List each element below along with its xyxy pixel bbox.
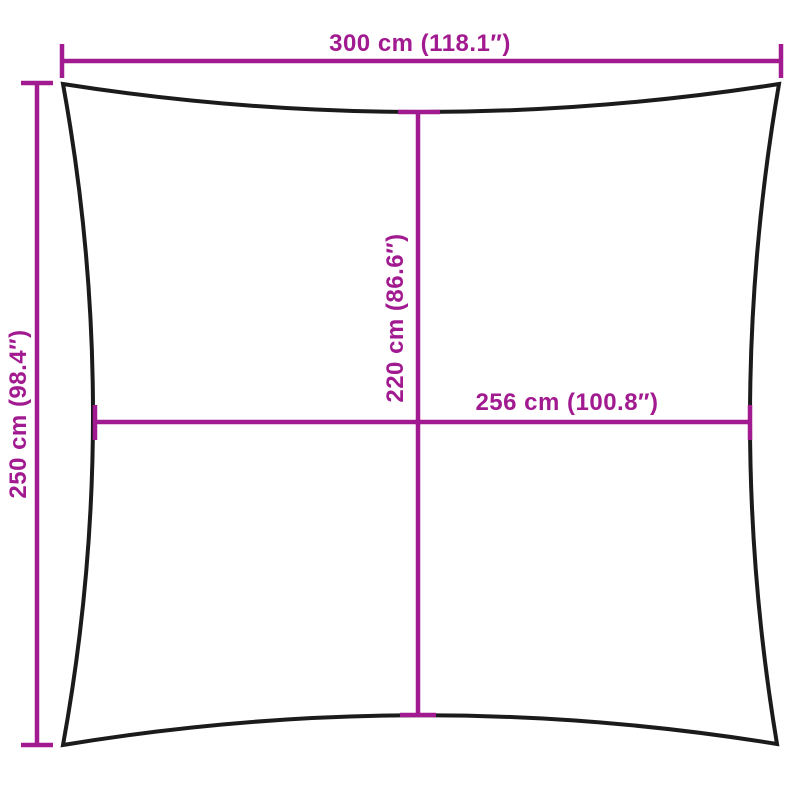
dimension-outer-height: 250 cm (98.4″) xyxy=(5,83,53,745)
dimension-inner-height: 220 cm (86.6″) xyxy=(382,112,440,715)
inner-height-label: 220 cm (86.6″) xyxy=(382,233,409,402)
diagram-canvas: 300 cm (118.1″) 250 cm (98.4″) 220 cm (8… xyxy=(0,0,800,800)
dimension-inner-width: 256 cm (100.8″) xyxy=(95,389,750,440)
outer-width-label: 300 cm (118.1″) xyxy=(329,30,511,57)
dimension-outer-width: 300 cm (118.1″) xyxy=(62,30,781,78)
dimension-diagram: 300 cm (118.1″) 250 cm (98.4″) 220 cm (8… xyxy=(0,0,800,800)
outer-height-label: 250 cm (98.4″) xyxy=(5,329,32,498)
sail-outline xyxy=(63,84,779,745)
inner-width-label: 256 cm (100.8″) xyxy=(475,389,658,416)
